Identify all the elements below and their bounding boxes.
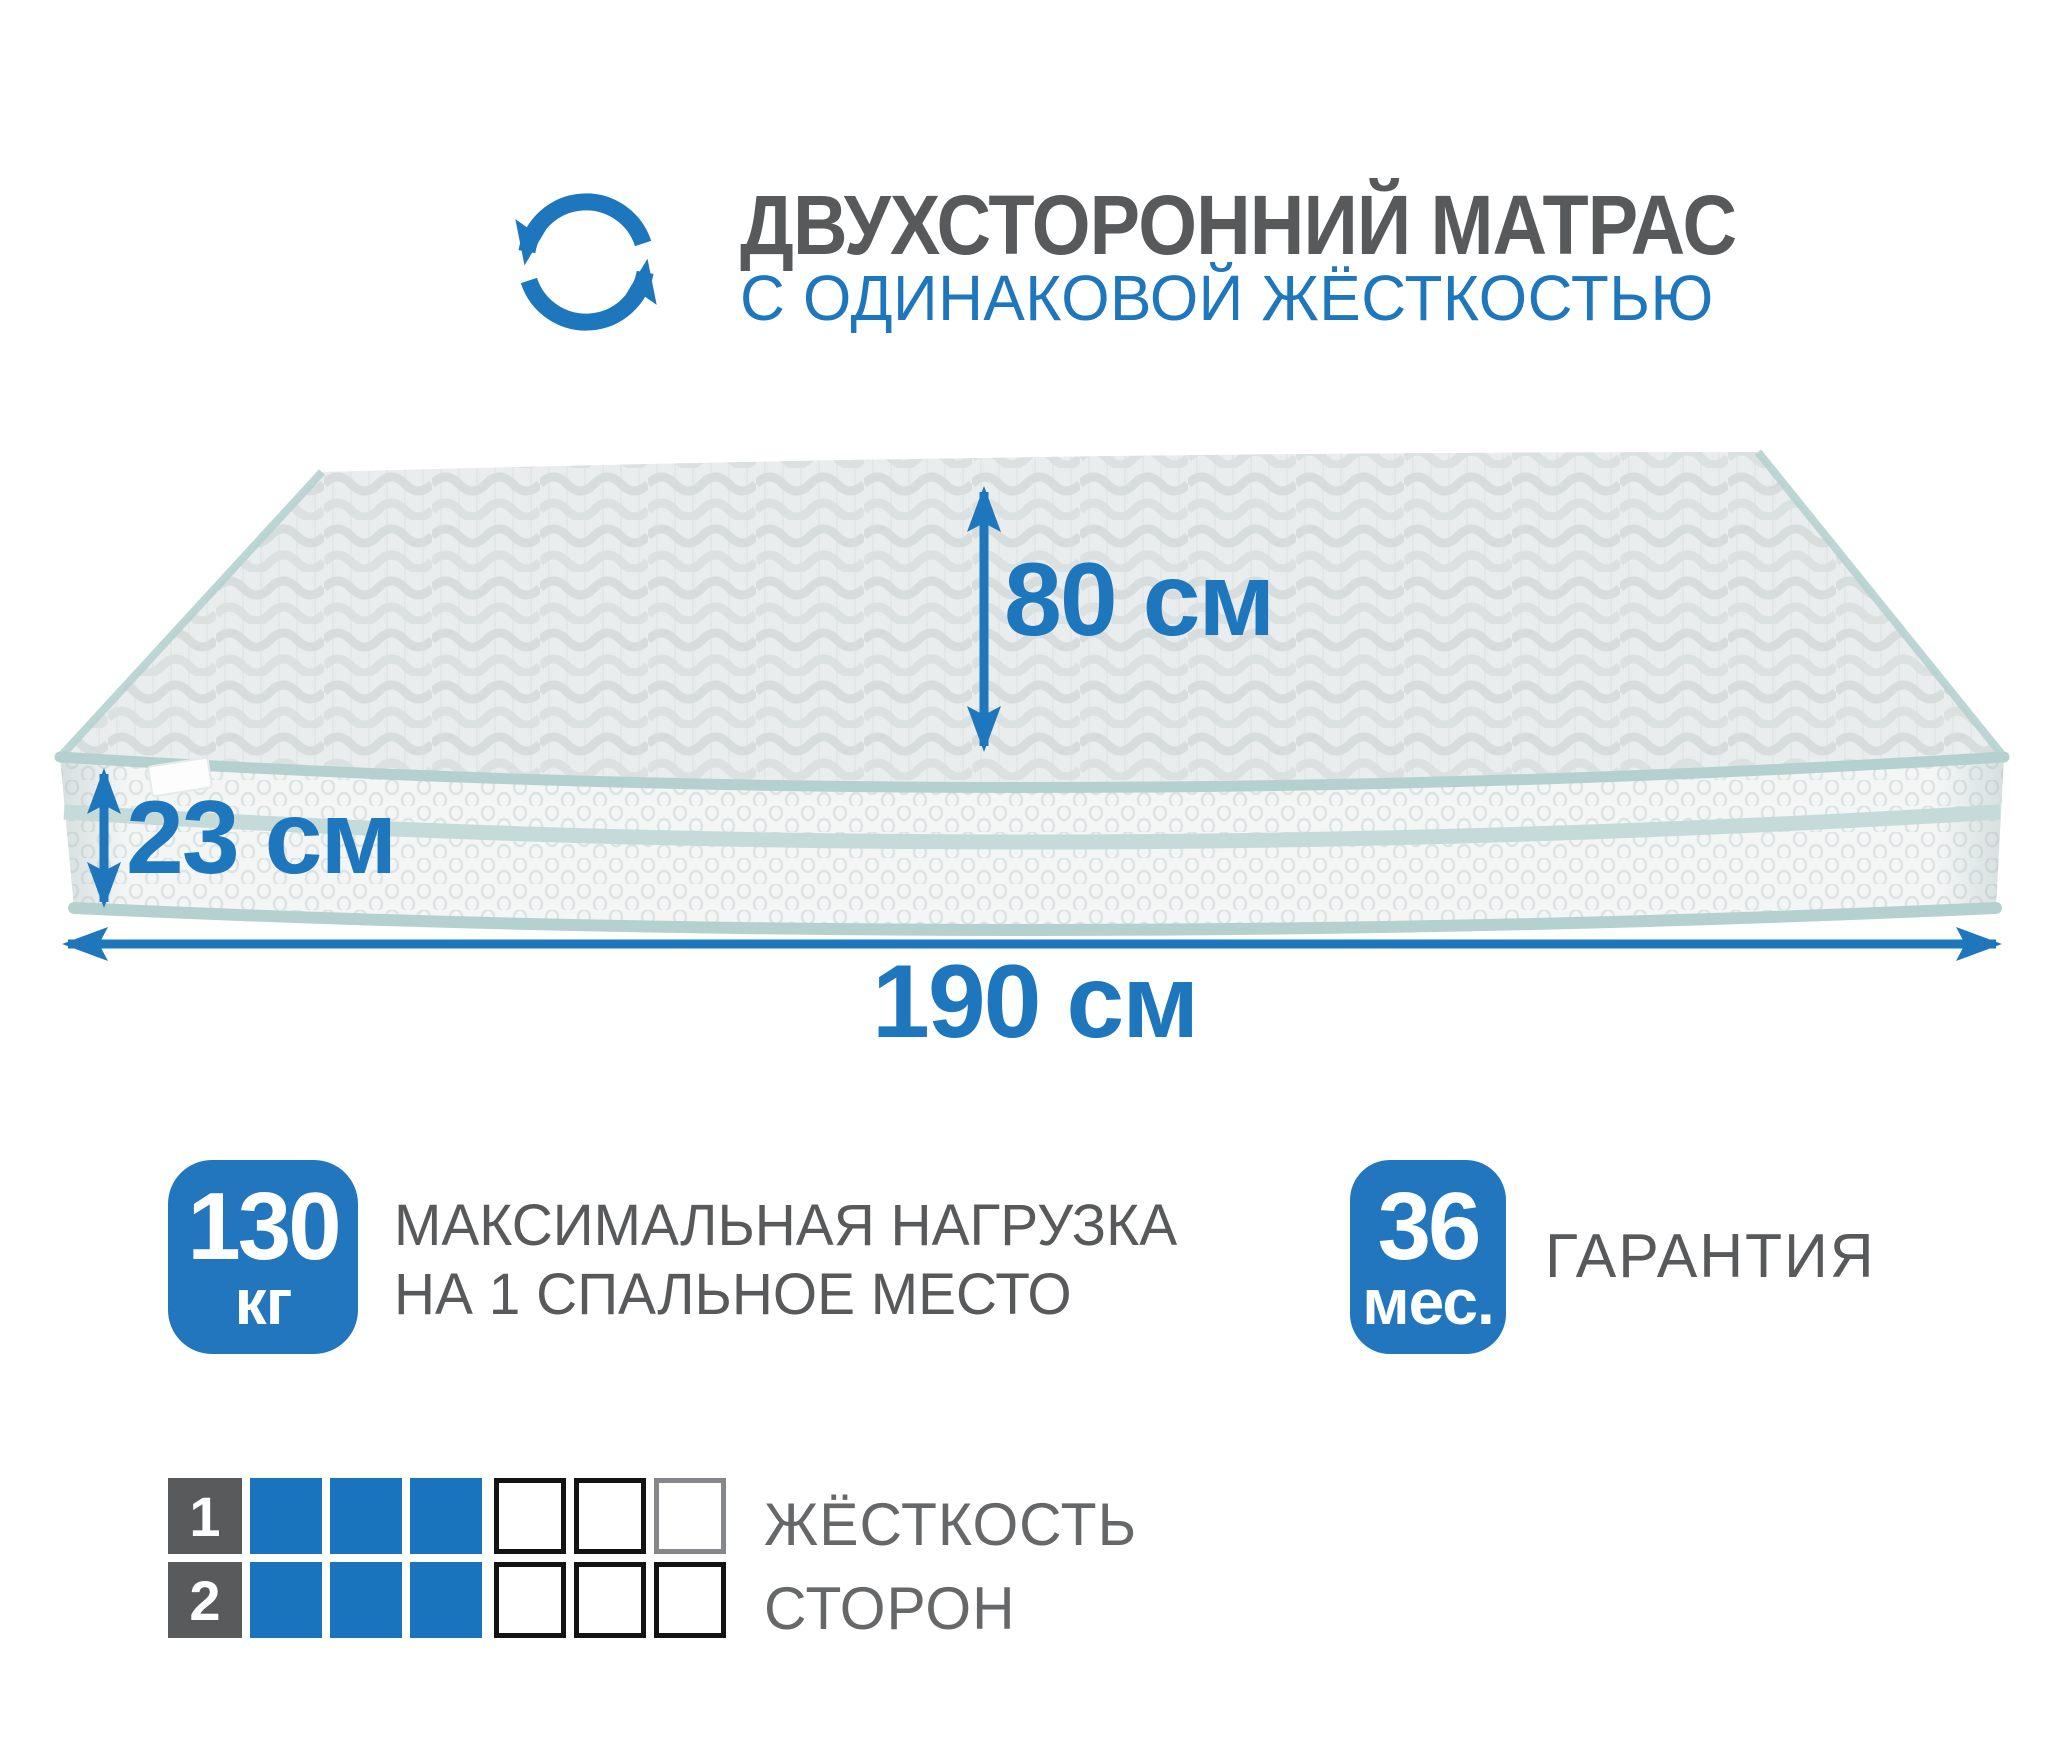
firmness-cell-filled <box>330 1562 402 1638</box>
firmness-cells <box>242 1478 726 1554</box>
warranty-badge: 36 мес. <box>1350 1160 1506 1354</box>
firmness-cell-empty <box>654 1478 726 1554</box>
warranty-value: 36 <box>1378 1181 1479 1272</box>
page-title: ДВУХСТОРОННИЙ МАТРАС <box>740 183 1736 267</box>
firmness-cell-filled <box>330 1478 402 1554</box>
firmness-row-side2: 2 <box>168 1562 726 1638</box>
firmness-cell-empty <box>494 1562 566 1638</box>
firmness-cell-empty <box>654 1562 726 1638</box>
firmness-cell-filled <box>250 1562 322 1638</box>
firmness-cell-empty <box>574 1478 646 1554</box>
page-subtitle: С ОДИНАКОВОЙ ЖЁСТКОСТЬЮ <box>740 266 1714 330</box>
firmness-grid: 1 2 <box>168 1478 726 1646</box>
top-width-label: 80 см <box>1004 548 1273 652</box>
warranty-unit: мес. <box>1362 1272 1493 1333</box>
max-load-unit: кг <box>235 1272 292 1333</box>
firmness-label-line1: ЖЁСТКОСТЬ <box>764 1483 1137 1567</box>
max-load-text: МАКСИМАЛЬНАЯ НАГРУЗКА НА 1 СПАЛЬНОЕ МЕСТ… <box>394 1191 1177 1329</box>
side-height-label: 23 см <box>126 786 395 890</box>
firmness-row-side1: 1 <box>168 1478 726 1554</box>
firmness-cell-filled <box>250 1478 322 1554</box>
firmness-cell-empty <box>574 1562 646 1638</box>
length-label: 190 см <box>872 950 1197 1054</box>
firmness-label-line2: СТОРОН <box>764 1567 1137 1651</box>
max-load-value: 130 <box>187 1181 338 1272</box>
firmness-label: ЖЁСТКОСТЬ СТОРОН <box>764 1483 1137 1651</box>
rotate-arrows-icon <box>498 180 674 338</box>
warranty-label: ГАРАНТИЯ <box>1545 1222 1876 1291</box>
max-load-badge: 130 кг <box>168 1160 358 1354</box>
firmness-cell-filled <box>410 1562 482 1638</box>
max-load-text-line1: МАКСИМАЛЬНАЯ НАГРУЗКА <box>394 1191 1177 1260</box>
firmness-cells <box>242 1562 726 1638</box>
side-number: 1 <box>168 1478 242 1554</box>
page: ДВУХСТОРОННИЙ МАТРАС С ОДИНАКОВОЙ ЖЁСТКО… <box>0 0 2048 1757</box>
max-load-text-line2: НА 1 СПАЛЬНОЕ МЕСТО <box>394 1260 1177 1329</box>
firmness-cell-filled <box>410 1478 482 1554</box>
side-number: 2 <box>168 1562 242 1638</box>
firmness-cell-empty <box>494 1478 566 1554</box>
